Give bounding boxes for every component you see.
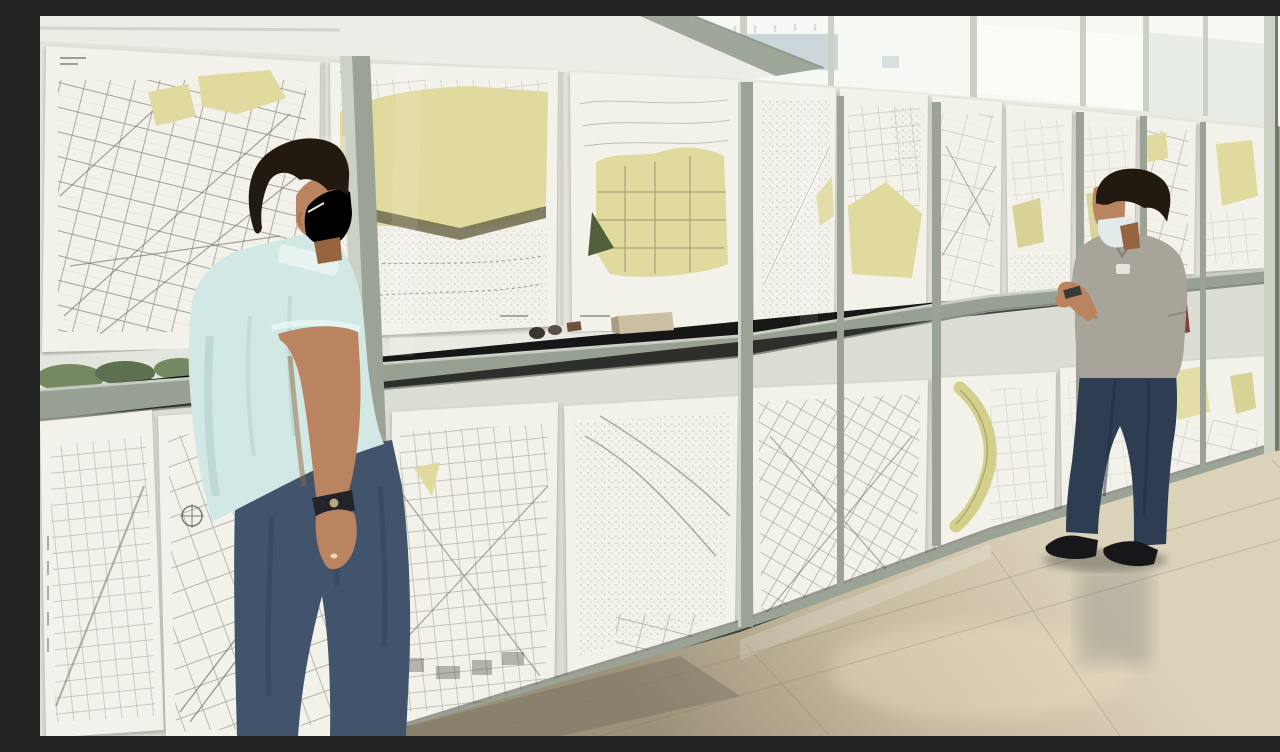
- zoning-map-top-3: [570, 72, 740, 332]
- dark-object: [548, 325, 562, 335]
- zoning-map-top-5: [840, 88, 928, 322]
- zoning-map-top-7: [1006, 104, 1072, 298]
- watch-face: [330, 499, 339, 508]
- zoning-map-top-6: [932, 96, 1002, 308]
- ring: [331, 554, 338, 559]
- zoning-map-top-4: [752, 82, 836, 330]
- photo-scene: Two men wearing face masks study black-a…: [40, 16, 1280, 736]
- scene-canvas: [40, 16, 1280, 736]
- shirt-badge: [1116, 264, 1130, 274]
- zoning-map-top-10: [1200, 122, 1266, 272]
- man-right-reflection: [1078, 568, 1152, 664]
- dark-object: [529, 327, 545, 339]
- zoning-map-bottom-3: [388, 402, 558, 728]
